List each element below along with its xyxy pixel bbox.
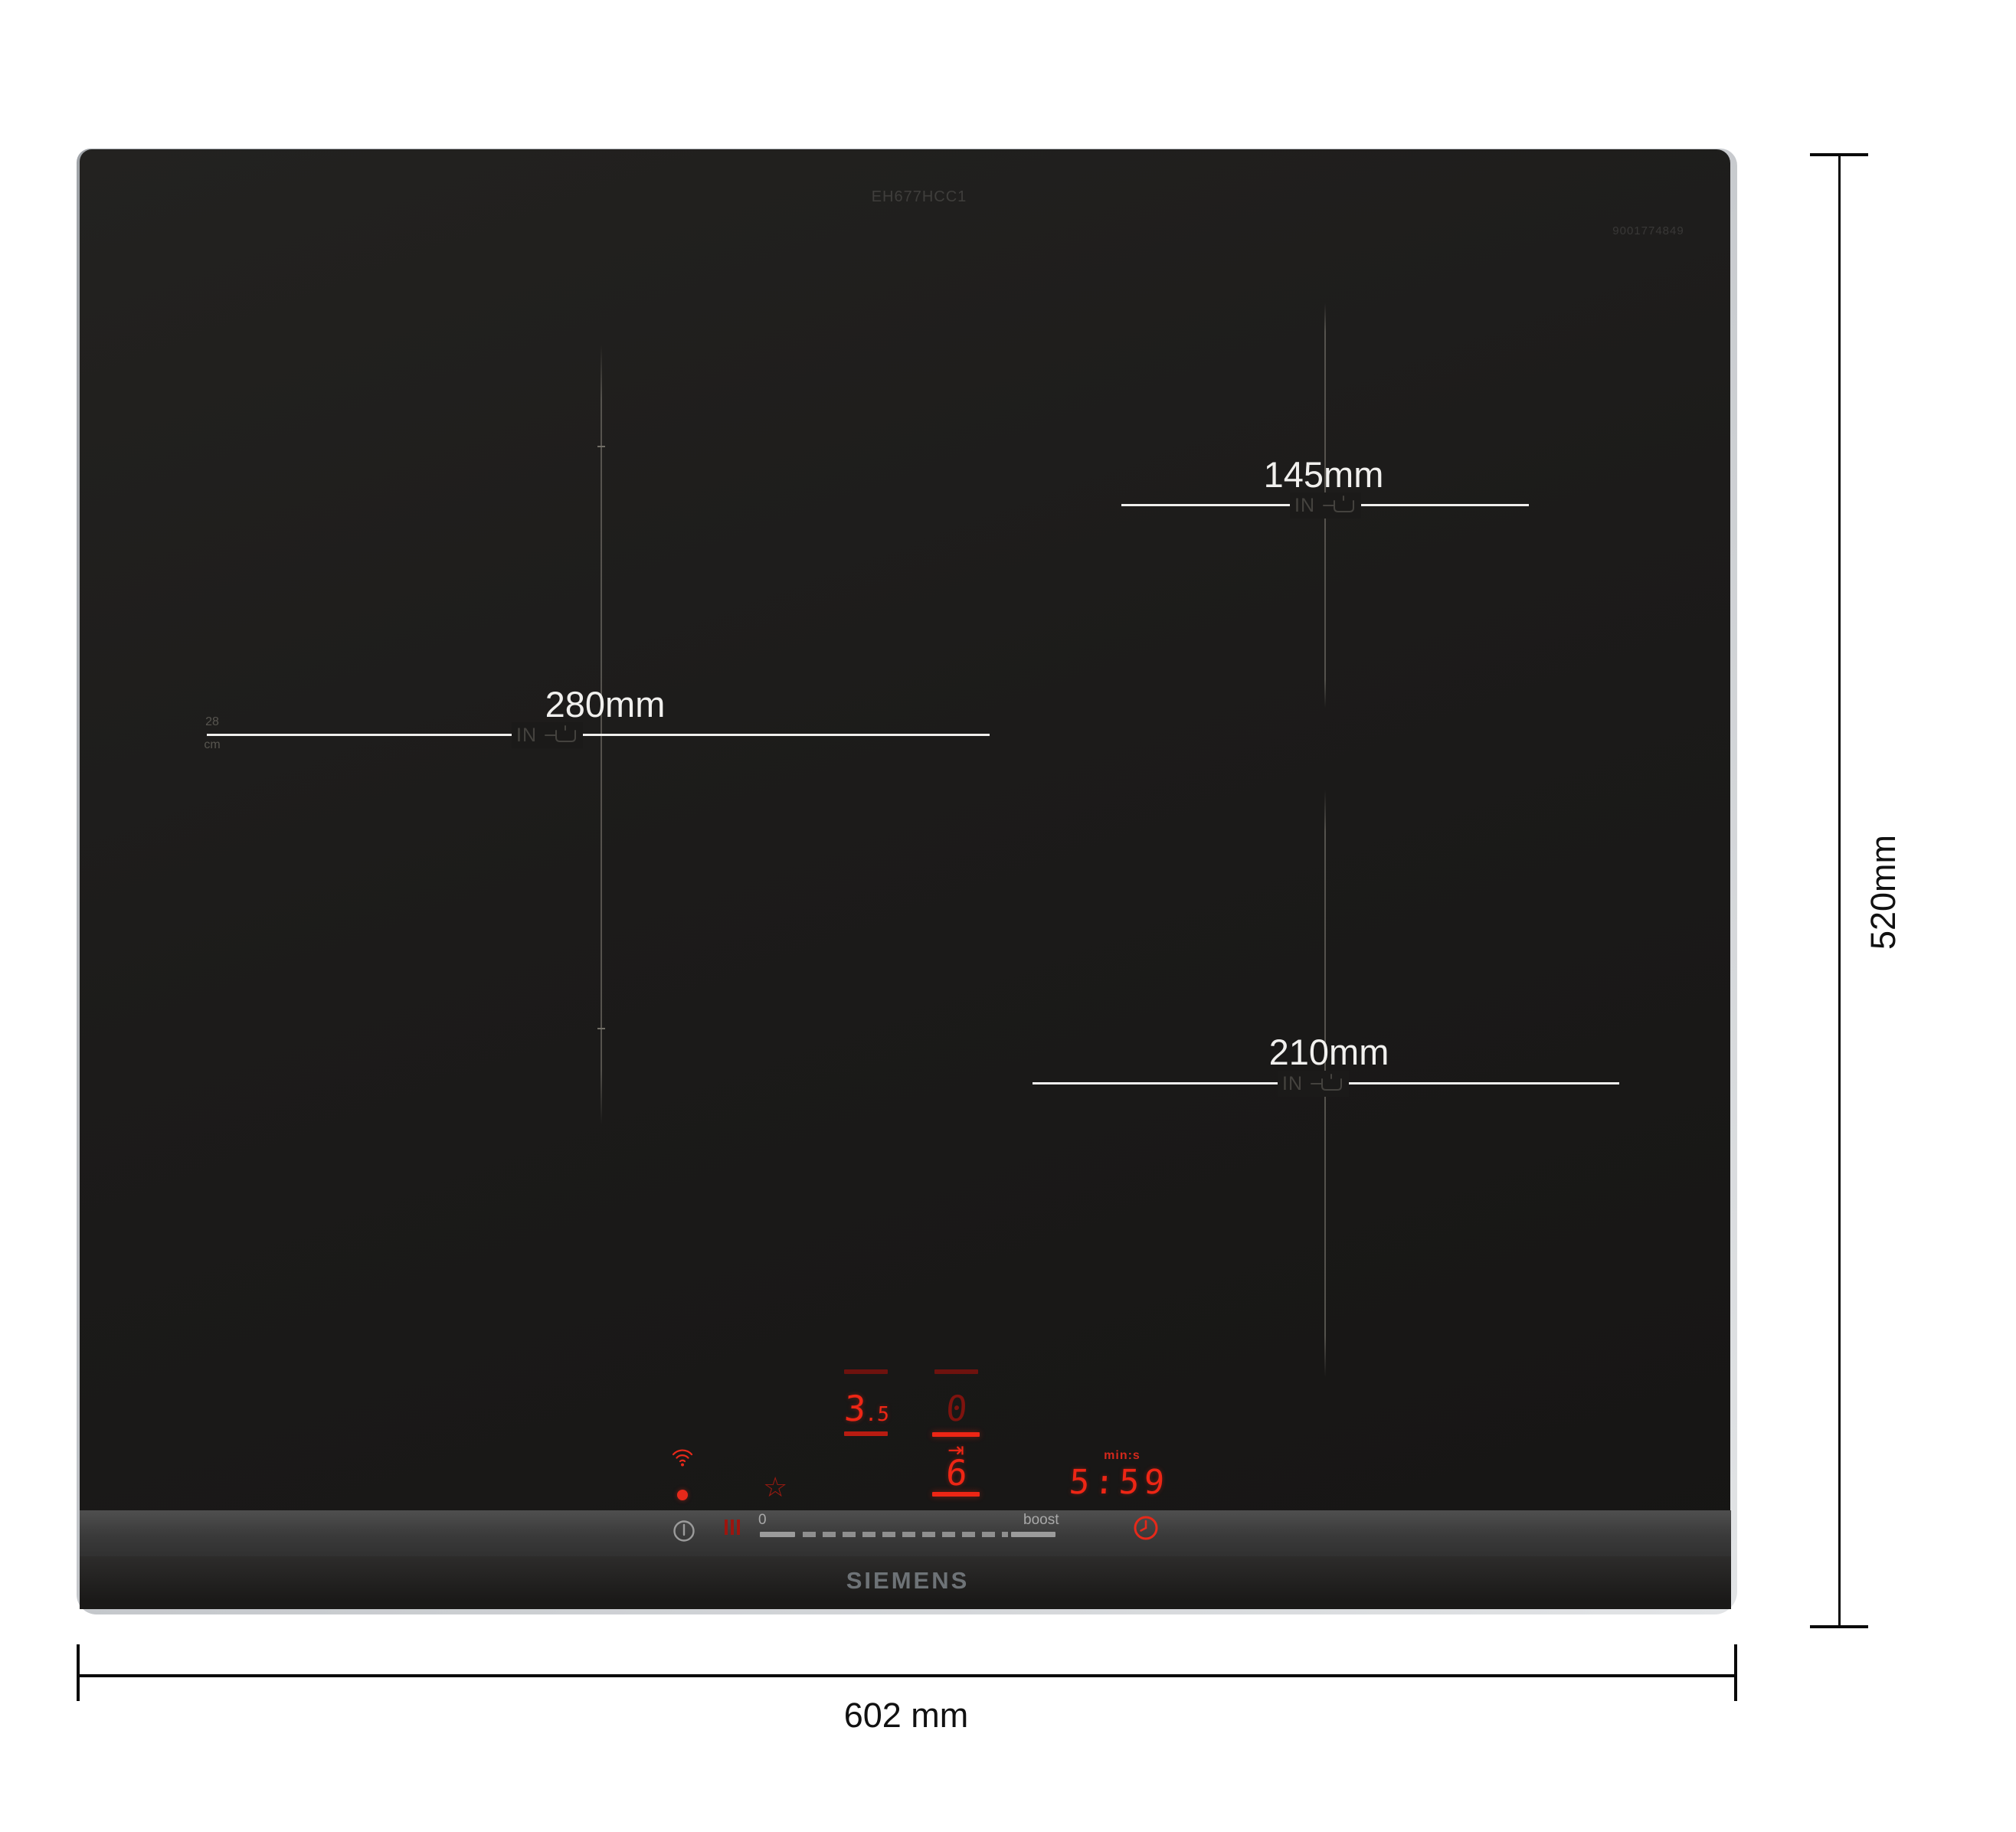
zone-top-right-induction-mark: IN: [1290, 492, 1361, 519]
display-left-top-bar[interactable]: [844, 1369, 888, 1374]
slider-start-segment[interactable]: [760, 1532, 795, 1537]
display-center-lower-bright-bar[interactable]: [932, 1492, 980, 1497]
width-dimension-line: [78, 1674, 1736, 1677]
zone-bottom-right-size-label: 210mm: [1214, 1031, 1444, 1073]
wifi-icon: [671, 1446, 694, 1467]
zone-bottom-right-induction-mark: IN: [1278, 1071, 1349, 1097]
model-number-label: EH677HCC1: [804, 188, 1034, 206]
zone-top-right-size-label: 145mm: [1209, 453, 1438, 496]
status-dot-indicator[interactable]: [677, 1490, 688, 1500]
display-center-standby-level: 0: [936, 1388, 977, 1429]
zone-left-size-label: 280mm: [490, 683, 720, 725]
display-left-level-frac: .5: [865, 1403, 890, 1426]
display-center-upper-bright-bar[interactable]: [932, 1432, 980, 1437]
hob-glass-surface: [80, 149, 1730, 1609]
zone-left-diameter-line: [207, 734, 990, 736]
height-dimension-line: [1838, 155, 1841, 1627]
pan-icon: [1311, 1074, 1344, 1094]
display-center-top-bar[interactable]: [934, 1369, 978, 1374]
height-dimension-bottom-cap: [1810, 1625, 1868, 1628]
timer-clock-icon[interactable]: [1132, 1514, 1160, 1542]
hob-outer-frame: [77, 149, 1737, 1614]
display-center-power-level: 6: [936, 1452, 977, 1493]
zone-top-right-in-label: IN: [1294, 495, 1315, 517]
timer-value-display: 5:59: [1068, 1463, 1166, 1502]
pan-icon: [1323, 496, 1357, 515]
height-dimension-top-cap: [1810, 153, 1868, 156]
brand-logo: SIEMENS: [793, 1567, 1023, 1595]
width-dimension-label: 602 mm: [791, 1696, 1021, 1735]
slider-min-label: 0: [758, 1512, 767, 1529]
pan-icon: [545, 725, 578, 745]
slider-boost-label: boost: [1023, 1512, 1059, 1529]
display-left-bottom-bar[interactable]: [844, 1431, 888, 1436]
height-dimension-label: 520mm: [1864, 812, 1899, 973]
power-slider-track[interactable]: [803, 1532, 1008, 1537]
timer-unit-label: min:s: [1095, 1449, 1149, 1463]
zone-left-in-label: IN: [516, 725, 537, 747]
zone-left-tick-bottom: [597, 1028, 605, 1029]
width-dimension-left-cap: [77, 1644, 80, 1701]
zone-left-pan-min-value: 28: [199, 715, 225, 729]
pause-icon[interactable]: [725, 1520, 740, 1535]
favorite-star-icon[interactable]: ☆: [763, 1474, 787, 1501]
product-dimension-diagram: EH677HCC1 9001774849 280mm 28 cm IN 145m…: [0, 0, 2016, 1832]
zone-bottom-right-in-label: IN: [1282, 1073, 1303, 1095]
display-left-power-level: 3.5: [838, 1388, 896, 1429]
zone-left-tick-top: [597, 446, 605, 447]
zone-left-induction-mark: IN: [512, 722, 583, 748]
power-icon[interactable]: [673, 1520, 695, 1542]
product-code-label: 9001774849: [1587, 224, 1710, 237]
zone-left-pan-min-unit: cm: [199, 738, 225, 752]
slider-boost-segment[interactable]: [1011, 1532, 1055, 1537]
display-left-level-int: 3: [843, 1388, 867, 1429]
width-dimension-right-cap: [1734, 1644, 1737, 1701]
